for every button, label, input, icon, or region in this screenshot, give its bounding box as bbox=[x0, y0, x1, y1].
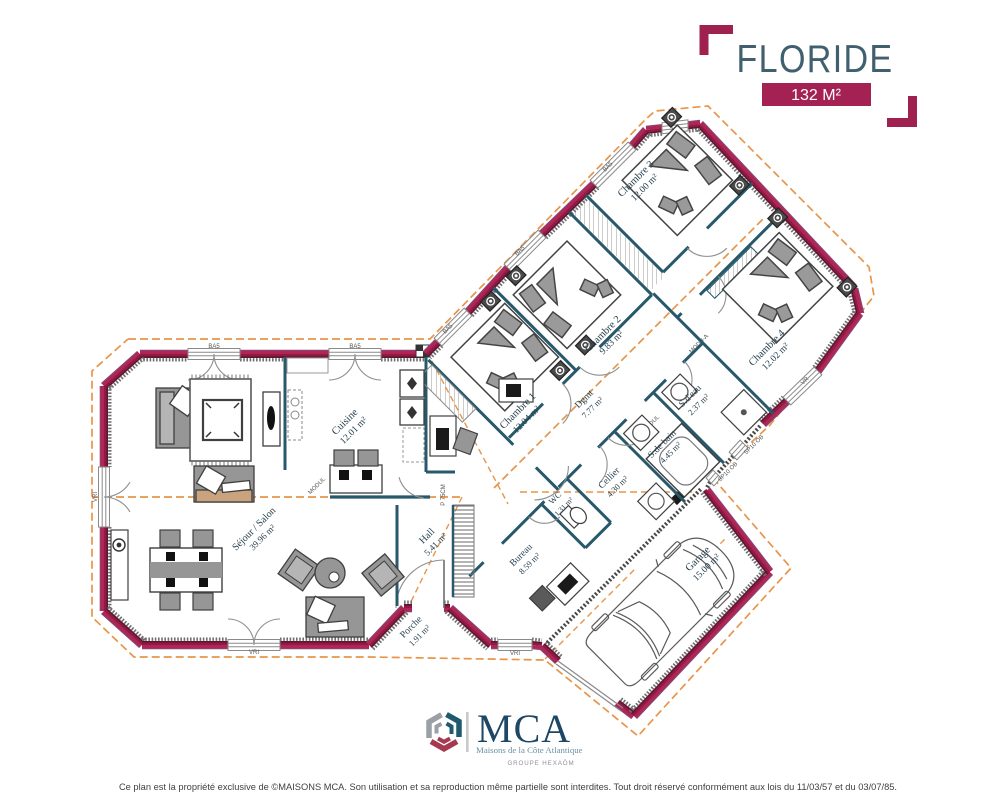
svg-text:BA5: BA5 bbox=[208, 344, 220, 350]
svg-text:VRI: VRI bbox=[249, 650, 259, 656]
svg-text:Maisons de la Côte Atlantique: Maisons de la Côte Atlantique bbox=[476, 745, 583, 755]
svg-text:FLORIDE: FLORIDE bbox=[737, 37, 894, 80]
svg-text:VRI: VRI bbox=[510, 651, 520, 657]
svg-text:132 M²: 132 M² bbox=[791, 87, 841, 104]
svg-text:VRI: VRI bbox=[93, 492, 99, 502]
svg-text:BA5: BA5 bbox=[349, 344, 361, 350]
svg-text:Ce plan est la propriété exclu: Ce plan est la propriété exclusive de ©M… bbox=[119, 782, 897, 792]
svg-text:P 75CM: P 75CM bbox=[441, 484, 447, 506]
svg-text:GROUPE HEXAÔM: GROUPE HEXAÔM bbox=[507, 760, 574, 767]
